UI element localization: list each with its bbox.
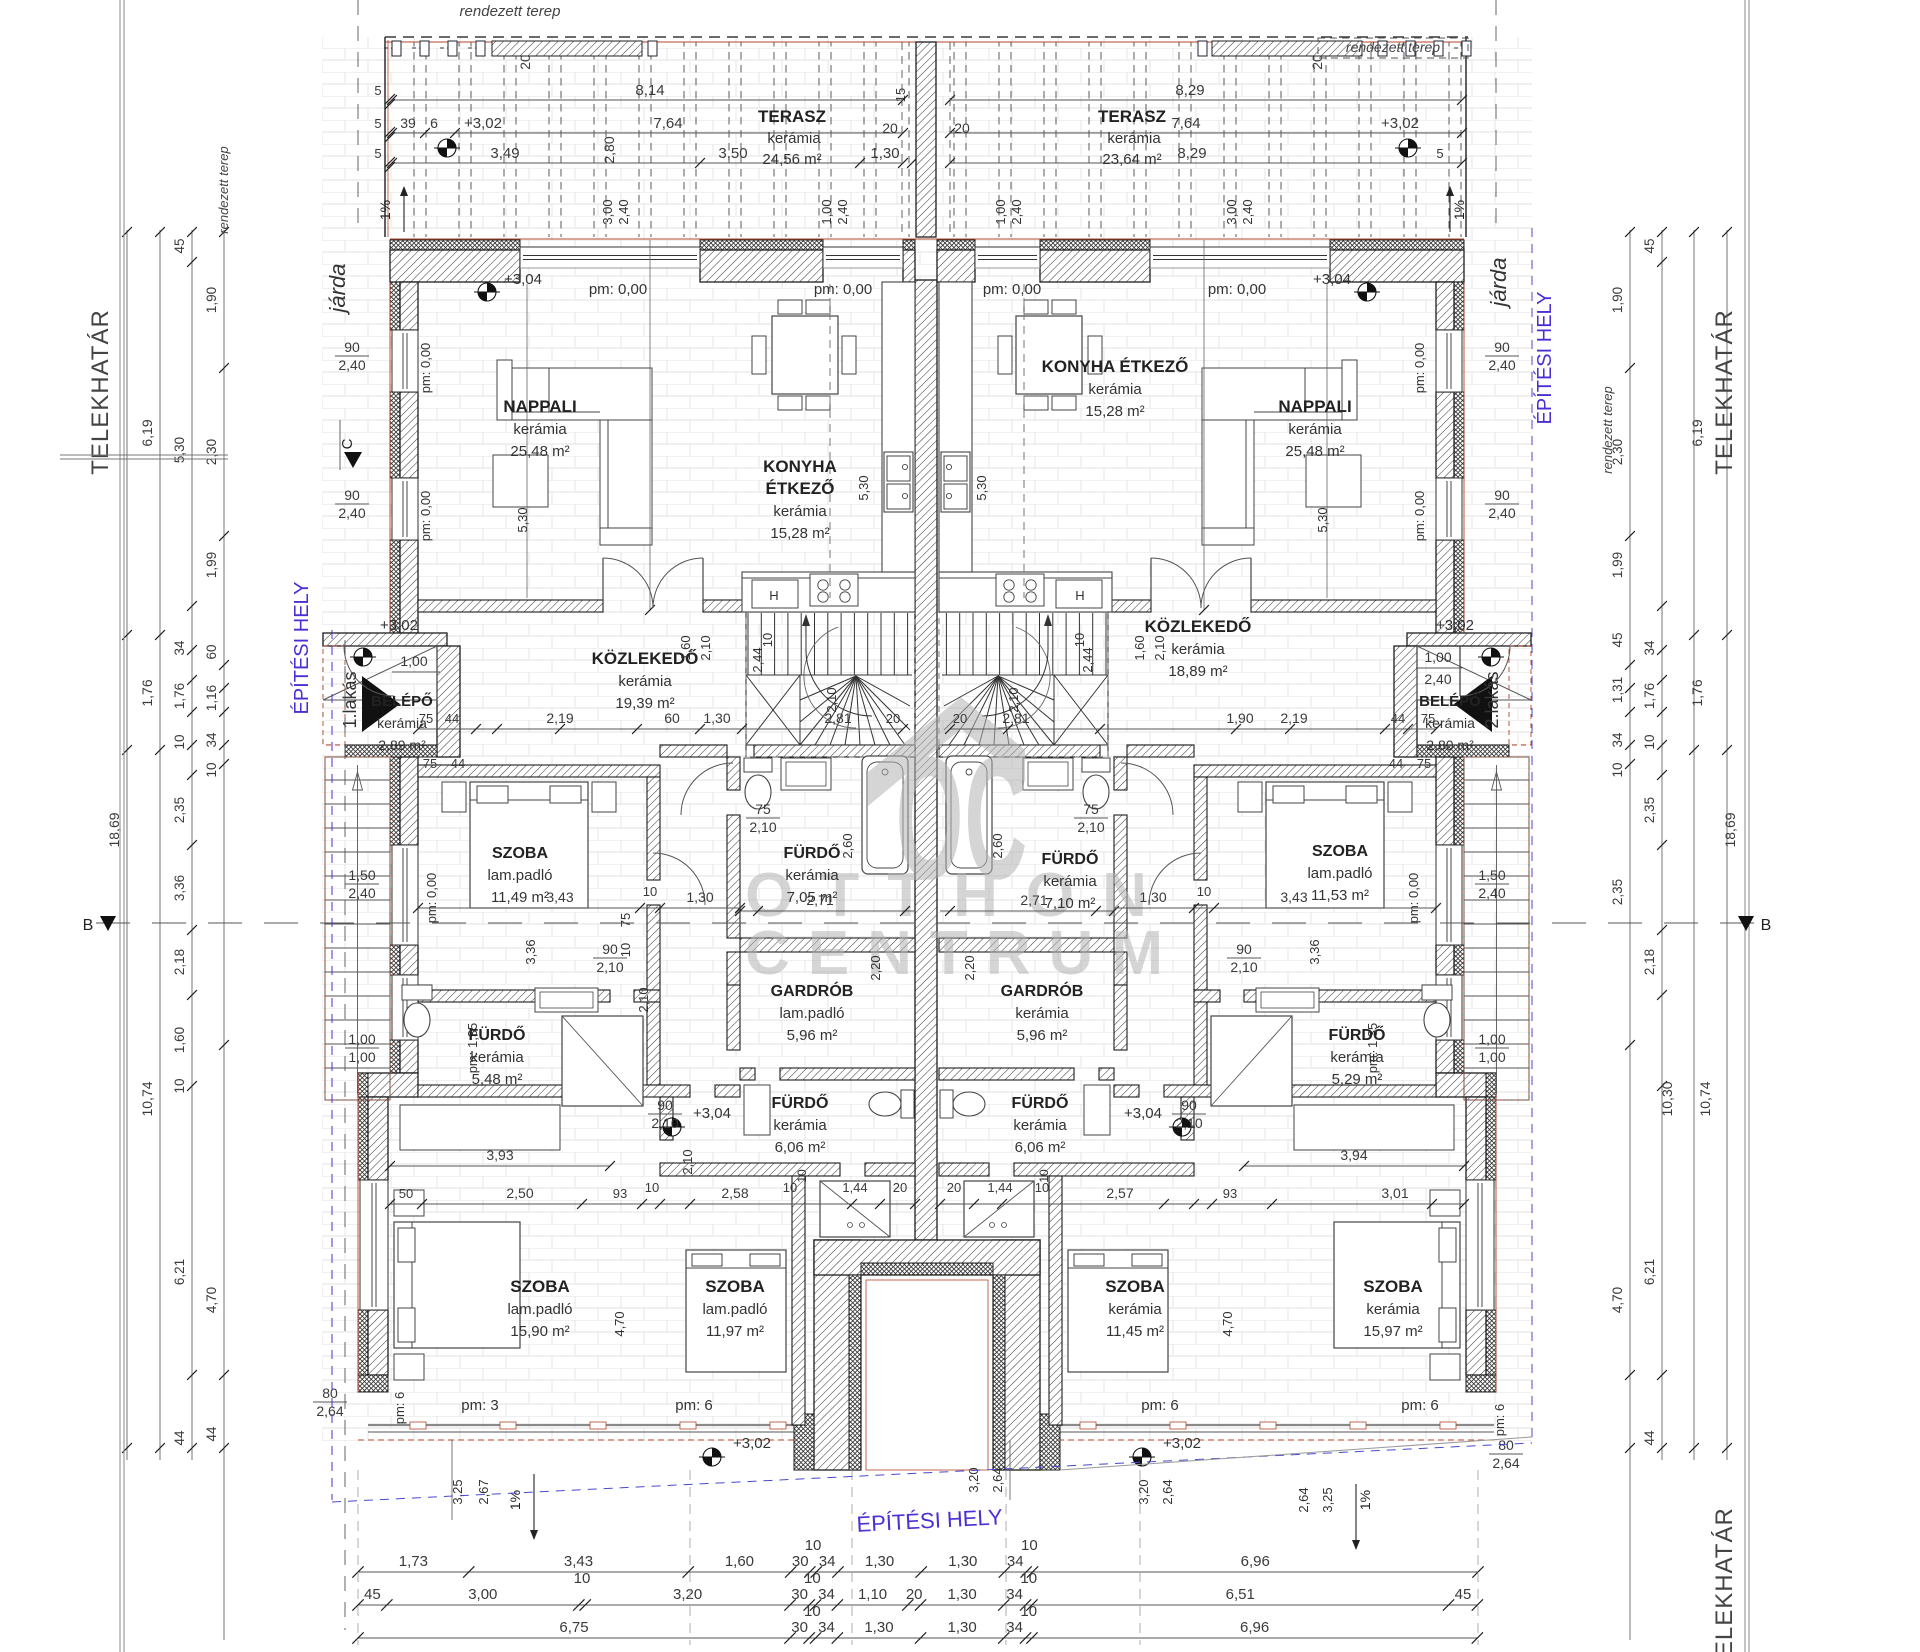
svg-text:2,18: 2,18 [1642,949,1657,975]
svg-text:18,69: 18,69 [1722,812,1738,847]
svg-text:3,36: 3,36 [1307,939,1322,964]
svg-text:1%: 1% [1451,200,1467,220]
svg-text:2,10: 2,10 [1175,1115,1202,1131]
svg-text:TELEKHATÁR: TELEKHATÁR [1711,309,1738,475]
svg-text:15,28 m²: 15,28 m² [770,525,829,542]
svg-text:3,36: 3,36 [523,939,538,964]
svg-text:2,10: 2,10 [824,687,839,712]
svg-text:pm: 1,35: pm: 1,35 [465,1023,480,1074]
svg-text:1,30: 1,30 [1139,889,1166,905]
svg-text:20: 20 [953,711,967,726]
svg-text:pm: 6: pm: 6 [1141,1397,1179,1414]
svg-text:39: 39 [400,115,416,131]
svg-text:1,30: 1,30 [686,889,713,905]
svg-text:6,21: 6,21 [1642,1259,1657,1285]
svg-text:4,70: 4,70 [1610,1287,1625,1313]
svg-text:BELÉPŐ: BELÉPŐ [371,692,433,710]
svg-text:44: 44 [1642,1430,1657,1446]
svg-text:rendezett terep: rendezett terep [216,146,231,233]
svg-text:járda: járda [1486,258,1511,310]
svg-text:pm: 1,35: pm: 1,35 [1365,1023,1380,1074]
svg-text:kerámia: kerámia [1108,1301,1162,1318]
svg-text:lam.padló: lam.padló [507,1301,572,1318]
svg-text:75: 75 [423,756,437,771]
svg-text:2,35: 2,35 [172,797,187,823]
svg-text:NAPPALI: NAPPALI [1278,397,1351,416]
svg-text:90: 90 [602,941,618,957]
svg-text:34: 34 [1006,1619,1023,1636]
svg-text:2,40: 2,40 [616,199,631,224]
svg-text:93: 93 [613,1186,627,1201]
svg-text:kerámia: kerámia [513,421,567,438]
svg-text:kerámia: kerámia [773,1117,827,1134]
svg-text:2,57: 2,57 [1106,1185,1133,1201]
svg-text:1,99: 1,99 [1610,552,1625,578]
svg-text:10: 10 [1642,734,1657,749]
svg-text:8,29: 8,29 [1175,82,1204,99]
svg-text:GARDRÓB: GARDRÓB [771,981,854,1000]
svg-text:1,00: 1,00 [348,1049,375,1065]
svg-text:75: 75 [419,711,433,726]
svg-text:kerámia: kerámia [1088,381,1142,398]
svg-text:1,30: 1,30 [865,1553,894,1570]
svg-text:2,40: 2,40 [1240,199,1255,224]
svg-text:KONYHA: KONYHA [763,457,837,476]
svg-text:10,30: 10,30 [1659,1081,1675,1116]
svg-text:1%: 1% [377,200,393,220]
svg-text:2,10: 2,10 [1077,819,1104,835]
svg-text:45: 45 [364,1586,381,1603]
svg-text:1,60: 1,60 [1132,635,1147,660]
svg-text:1,99: 1,99 [204,552,219,578]
svg-text:pm: 0,00: pm: 0,00 [983,281,1041,298]
svg-text:+3,02: +3,02 [1436,617,1474,634]
svg-text:90: 90 [657,1097,673,1113]
svg-text:2,35: 2,35 [1610,879,1625,905]
svg-text:járda: járda [325,264,350,316]
svg-text:30: 30 [792,1553,809,1570]
svg-text:1,90: 1,90 [1226,710,1253,726]
svg-text:2,71: 2,71 [1020,892,1047,908]
svg-text:80: 80 [322,1385,338,1401]
svg-text:75: 75 [1417,756,1431,771]
svg-text:3,49: 3,49 [490,145,519,162]
svg-text:34: 34 [1642,640,1657,656]
svg-text:SZOBA: SZOBA [1105,1277,1165,1296]
svg-text:lam.padló: lam.padló [702,1301,767,1318]
svg-text:SZOBA: SZOBA [1312,843,1368,860]
svg-text:6,75: 6,75 [559,1619,588,1636]
svg-text:75: 75 [1421,711,1435,726]
svg-text:10: 10 [804,1603,821,1620]
svg-text:1,30: 1,30 [948,1553,977,1570]
svg-text:1,60: 1,60 [725,1553,754,1570]
svg-text:2,40: 2,40 [835,199,850,224]
svg-text:3,00: 3,00 [600,199,615,224]
svg-text:11,97 m²: 11,97 m² [706,1323,764,1340]
svg-text:1,00: 1,00 [400,653,427,669]
svg-text:KÖZLEKEDŐ: KÖZLEKEDŐ [1145,617,1252,636]
svg-text:2,30: 2,30 [204,439,219,465]
svg-text:24,56 m²: 24,56 m² [762,151,821,168]
svg-text:SZOBA: SZOBA [510,1277,570,1296]
svg-text:2,10: 2,10 [1006,687,1021,712]
svg-text:SZOBA: SZOBA [492,845,548,862]
svg-text:2.lakás: 2.lakás [1482,671,1502,728]
svg-text:11,45 m²: 11,45 m² [1106,1323,1164,1340]
svg-text:2,60: 2,60 [990,833,1005,858]
svg-text:1,00: 1,00 [819,199,834,224]
svg-text:H: H [1075,588,1084,603]
svg-text:FÜRDŐ: FÜRDŐ [772,1093,829,1112]
svg-text:2,50: 2,50 [506,1185,533,1201]
svg-text:4,70: 4,70 [612,1311,627,1336]
svg-text:2,10: 2,10 [749,819,776,835]
svg-text:2,40: 2,40 [1009,199,1024,224]
svg-text:25,48 m²: 25,48 m² [510,443,569,460]
svg-text:kerámia: kerámia [785,867,839,884]
svg-text:TELEKHATÁR: TELEKHATÁR [87,309,114,475]
svg-text:1%: 1% [1357,1490,1373,1510]
svg-text:20: 20 [882,120,898,136]
svg-text:11,53 m²: 11,53 m² [1311,887,1369,904]
svg-text:6,96: 6,96 [1241,1553,1270,1570]
svg-text:+3,04: +3,04 [1313,271,1351,288]
svg-text:44: 44 [1389,756,1403,771]
svg-text:1,76: 1,76 [1689,679,1705,706]
svg-text:6,19: 6,19 [1689,419,1705,446]
svg-text:34: 34 [1610,732,1625,748]
svg-text:50: 50 [399,1186,413,1201]
svg-text:90: 90 [1494,487,1510,503]
svg-text:pm: 0,00: pm: 0,00 [1208,281,1266,298]
svg-text:2,18: 2,18 [172,949,187,975]
svg-text:44: 44 [172,1430,187,1446]
svg-text:5,30: 5,30 [856,475,871,500]
svg-text:kerámia: kerámia [1107,130,1161,147]
svg-text:10,74: 10,74 [139,1081,155,1116]
svg-text:75: 75 [1083,801,1099,817]
svg-text:pm: 3: pm: 3 [461,1397,499,1414]
svg-text:1,10: 1,10 [858,1586,887,1603]
svg-text:kerámia: kerámia [1015,1005,1069,1022]
svg-text:3,00: 3,00 [1224,199,1239,224]
svg-text:3,43: 3,43 [564,1553,593,1570]
svg-text:10: 10 [804,1570,821,1587]
svg-text:20: 20 [954,120,970,136]
svg-text:pm: 0,00: pm: 0,00 [589,281,647,298]
svg-text:10: 10 [172,1078,187,1093]
svg-text:lam.padló: lam.padló [487,867,552,884]
svg-text:1,16: 1,16 [204,685,219,711]
svg-text:2,60: 2,60 [840,833,855,858]
svg-text:1,73: 1,73 [399,1553,428,1570]
svg-text:10: 10 [645,1180,659,1195]
svg-text:+3,04: +3,04 [504,271,542,288]
svg-text:6,51: 6,51 [1226,1586,1255,1603]
svg-text:5: 5 [374,146,381,161]
svg-text:kerámia: kerámia [1171,641,1225,658]
svg-text:5: 5 [1436,146,1443,161]
svg-text:93: 93 [1223,1186,1237,1201]
svg-text:45: 45 [1642,238,1657,253]
svg-text:1,00: 1,00 [1478,1049,1505,1065]
svg-text:FÜRDŐ: FÜRDŐ [1042,849,1099,868]
svg-text:1,50: 1,50 [1478,867,1505,883]
svg-text:90: 90 [344,487,360,503]
svg-text:5,30: 5,30 [515,507,530,532]
svg-text:1,00: 1,00 [1478,1031,1505,1047]
svg-text:20: 20 [906,1586,923,1603]
svg-text:2,40: 2,40 [338,505,365,521]
svg-text:5,96 m²: 5,96 m² [1017,1027,1068,1044]
svg-text:18,89 m²: 18,89 m² [1168,663,1227,680]
svg-text:2,44: 2,44 [750,647,765,672]
svg-text:1,60: 1,60 [172,1027,187,1053]
svg-text:2,40: 2,40 [1478,885,1505,901]
svg-text:GARDRÓB: GARDRÓB [1001,981,1084,1000]
svg-text:2,64: 2,64 [1296,1487,1311,1512]
svg-text:+3,02: +3,02 [1163,1435,1201,1452]
svg-text:8,29: 8,29 [1177,145,1206,162]
svg-text:23,64 m²: 23,64 m² [1102,151,1161,168]
svg-text:75: 75 [755,801,771,817]
svg-text:KONYHA ÉTKEZŐ: KONYHA ÉTKEZŐ [1042,357,1189,376]
svg-text:3,20: 3,20 [673,1586,702,1603]
svg-text:2,80: 2,80 [601,136,617,163]
svg-text:1,30: 1,30 [864,1619,893,1636]
svg-text:3,36: 3,36 [172,875,187,901]
svg-text:2,40: 2,40 [1488,505,1515,521]
svg-text:10: 10 [574,1570,591,1587]
svg-text:+3,02: +3,02 [464,115,502,132]
svg-text:H: H [769,588,778,603]
svg-text:1,76: 1,76 [172,683,187,709]
svg-text:10: 10 [172,734,187,749]
svg-text:44: 44 [451,756,465,771]
svg-text:rendezett terep: rendezett terep [1600,386,1615,473]
svg-text:25,48 m²: 25,48 m² [1285,443,1344,460]
svg-text:10: 10 [1021,1537,1038,1554]
svg-text:+3,02: +3,02 [1381,115,1419,132]
svg-text:ÉPÍTÉSI HELY: ÉPÍTÉSI HELY [290,581,313,714]
svg-text:10: 10 [760,633,775,647]
svg-text:75: 75 [618,913,633,927]
svg-text:34: 34 [1007,1553,1024,1570]
svg-text:ÉTKEZŐ: ÉTKEZŐ [766,479,835,498]
svg-text:TERASZ: TERASZ [1098,107,1166,126]
svg-text:FÜRDŐ: FÜRDŐ [1012,1093,1069,1112]
svg-text:10: 10 [1610,762,1625,777]
svg-text:C: C [339,438,356,449]
svg-text:15,28 m²: 15,28 m² [1085,403,1144,420]
svg-text:2,10: 2,10 [651,1115,678,1131]
svg-text:90: 90 [344,339,360,355]
svg-text:kerámia: kerámia [618,673,672,690]
svg-text:5,96 m²: 5,96 m² [787,1027,838,1044]
svg-text:FÜRDŐ: FÜRDŐ [784,843,841,862]
svg-text:3,43: 3,43 [546,889,573,905]
svg-text:5: 5 [374,116,381,131]
svg-text:34: 34 [172,640,187,656]
svg-text:1,44: 1,44 [842,1180,867,1195]
svg-text:2,64: 2,64 [990,1467,1005,1492]
svg-text:60: 60 [664,710,680,726]
svg-text:44: 44 [204,1426,219,1442]
svg-text:SZOBA: SZOBA [1363,1277,1423,1296]
svg-text:6,21: 6,21 [172,1259,187,1285]
svg-text:34: 34 [204,732,219,748]
svg-text:3,94: 3,94 [1340,1147,1367,1163]
svg-text:5,30: 5,30 [1315,507,1330,532]
svg-text:10: 10 [643,884,657,899]
svg-text:15: 15 [893,88,908,102]
svg-text:45: 45 [172,238,187,253]
svg-text:3,00: 3,00 [468,1586,497,1603]
svg-text:44: 44 [1391,711,1405,726]
svg-text:kerámia: kerámia [773,503,827,520]
svg-text:2,19: 2,19 [546,710,573,726]
svg-text:11,49 m²: 11,49 m² [491,889,549,906]
svg-text:90: 90 [1236,941,1252,957]
svg-text:2,40: 2,40 [1488,357,1515,373]
svg-text:7,64: 7,64 [1171,115,1200,132]
svg-text:2,58: 2,58 [721,1185,748,1201]
svg-text:1,90: 1,90 [204,287,219,313]
svg-text:2,44: 2,44 [1080,647,1095,672]
svg-text:2,10: 2,10 [698,635,713,660]
svg-text:10: 10 [795,1169,809,1183]
svg-text:1,50: 1,50 [348,867,375,883]
svg-text:44: 44 [445,711,459,726]
svg-text:2,40: 2,40 [1424,671,1451,687]
svg-text:1,60: 1,60 [678,635,693,660]
svg-text:15,97 m²: 15,97 m² [1363,1323,1422,1340]
svg-text:+3,04: +3,04 [1124,1105,1162,1122]
svg-text:rendezett terep: rendezett terep [460,3,561,20]
svg-text:10: 10 [805,1537,822,1554]
svg-text:1,00: 1,00 [993,199,1008,224]
svg-text:7,10 m²: 7,10 m² [1045,895,1096,912]
svg-text:2,10: 2,10 [1152,635,1167,660]
svg-text:1,30: 1,30 [703,710,730,726]
svg-text:2,64: 2,64 [1160,1479,1175,1504]
svg-text:30: 30 [791,1619,808,1636]
svg-text:B: B [83,917,94,934]
svg-text:90: 90 [1181,1097,1197,1113]
svg-text:20: 20 [893,1180,907,1195]
svg-text:kerámia: kerámia [1288,421,1342,438]
svg-text:5: 5 [374,83,381,98]
svg-text:2,40: 2,40 [338,357,365,373]
svg-text:45: 45 [1610,632,1625,647]
svg-text:2,19: 2,19 [1280,710,1307,726]
svg-text:2,35: 2,35 [1642,797,1657,823]
svg-text:pm: 0,00: pm: 0,00 [1406,873,1421,924]
svg-text:pm: 6: pm: 6 [1401,1397,1439,1414]
svg-text:1,00: 1,00 [348,1031,375,1047]
svg-text:60: 60 [204,644,219,659]
svg-text:B: B [1761,917,1772,934]
svg-text:6: 6 [430,115,438,131]
svg-text:2,89 m²: 2,89 m² [378,737,426,753]
svg-text:6,96: 6,96 [1240,1619,1269,1636]
svg-text:10: 10 [1072,633,1087,647]
svg-text:34: 34 [818,1586,835,1603]
svg-text:6,19: 6,19 [139,419,155,446]
svg-text:3,25: 3,25 [1320,1487,1335,1512]
svg-text:kerámia: kerámia [1366,1301,1420,1318]
svg-text:8,14: 8,14 [635,82,664,99]
svg-text:2,64: 2,64 [1492,1455,1519,1471]
svg-text:pm: 0,00: pm: 0,00 [424,873,439,924]
svg-text:2,71: 2,71 [806,892,833,908]
svg-text:3,01: 3,01 [1381,1185,1408,1201]
svg-text:10: 10 [1020,1570,1037,1587]
svg-text:3,20: 3,20 [966,1467,981,1492]
svg-text:2,10: 2,10 [1230,959,1257,975]
svg-text:1,44: 1,44 [987,1180,1012,1195]
svg-text:34: 34 [1006,1586,1023,1603]
svg-text:3,43: 3,43 [1280,889,1307,905]
svg-text:15,90 m²: 15,90 m² [510,1323,569,1340]
svg-text:2,20: 2,20 [868,955,883,980]
svg-text:1,30: 1,30 [948,1619,977,1636]
svg-text:2,10: 2,10 [636,987,651,1012]
svg-text:1,76: 1,76 [139,679,155,706]
svg-text:2,64: 2,64 [316,1403,343,1419]
svg-text:10: 10 [1020,1603,1037,1620]
svg-text:pm: 6: pm: 6 [1492,1404,1507,1437]
svg-text:TELEKHATÁR: TELEKHATÁR [1711,1507,1738,1652]
svg-text:2,80 m²: 2,80 m² [1426,737,1474,753]
svg-text:lam.padló: lam.padló [779,1005,844,1022]
svg-text:2,67: 2,67 [476,1479,491,1504]
svg-text:1.lakás: 1.lakás [340,671,360,728]
svg-text:6,06 m²: 6,06 m² [775,1139,826,1156]
svg-text:90: 90 [1494,339,1510,355]
svg-text:3,93: 3,93 [486,1147,513,1163]
svg-text:pm: 6: pm: 6 [392,1392,407,1425]
svg-text:10,74: 10,74 [1697,1081,1713,1116]
svg-text:1,30: 1,30 [948,1586,977,1603]
svg-text:1,31: 1,31 [1610,677,1625,703]
svg-text:pm: 0,00: pm: 0,00 [1412,343,1427,394]
svg-text:20: 20 [886,711,900,726]
svg-text:34: 34 [818,1619,835,1636]
svg-text:BELÉPŐ: BELÉPŐ [1419,692,1481,710]
svg-text:3,50: 3,50 [718,145,747,162]
svg-text:20: 20 [947,1180,961,1195]
svg-text:2,20: 2,20 [962,955,977,980]
svg-text:kerámia: kerámia [767,130,821,147]
svg-text:4,70: 4,70 [1220,1311,1235,1336]
svg-text:1,00: 1,00 [1424,649,1451,665]
svg-text:2,10: 2,10 [680,1149,695,1174]
svg-text:30: 30 [791,1586,808,1603]
svg-text:lam.padló: lam.padló [1307,865,1372,882]
svg-text:10: 10 [204,762,219,777]
svg-text:pm: 0,00: pm: 0,00 [1412,491,1427,542]
svg-text:6,06 m²: 6,06 m² [1015,1139,1066,1156]
svg-text:ÉPÍTÉSI HELY: ÉPÍTÉSI HELY [1533,291,1556,424]
svg-text:7,64: 7,64 [653,115,682,132]
svg-text:rendezett terep: rendezett terep [1346,39,1440,55]
svg-text:pm: 0,00: pm: 0,00 [418,491,433,542]
svg-text:5,30: 5,30 [974,475,989,500]
svg-text:kerámia: kerámia [1013,1117,1067,1134]
svg-text:3,20: 3,20 [1136,1479,1151,1504]
